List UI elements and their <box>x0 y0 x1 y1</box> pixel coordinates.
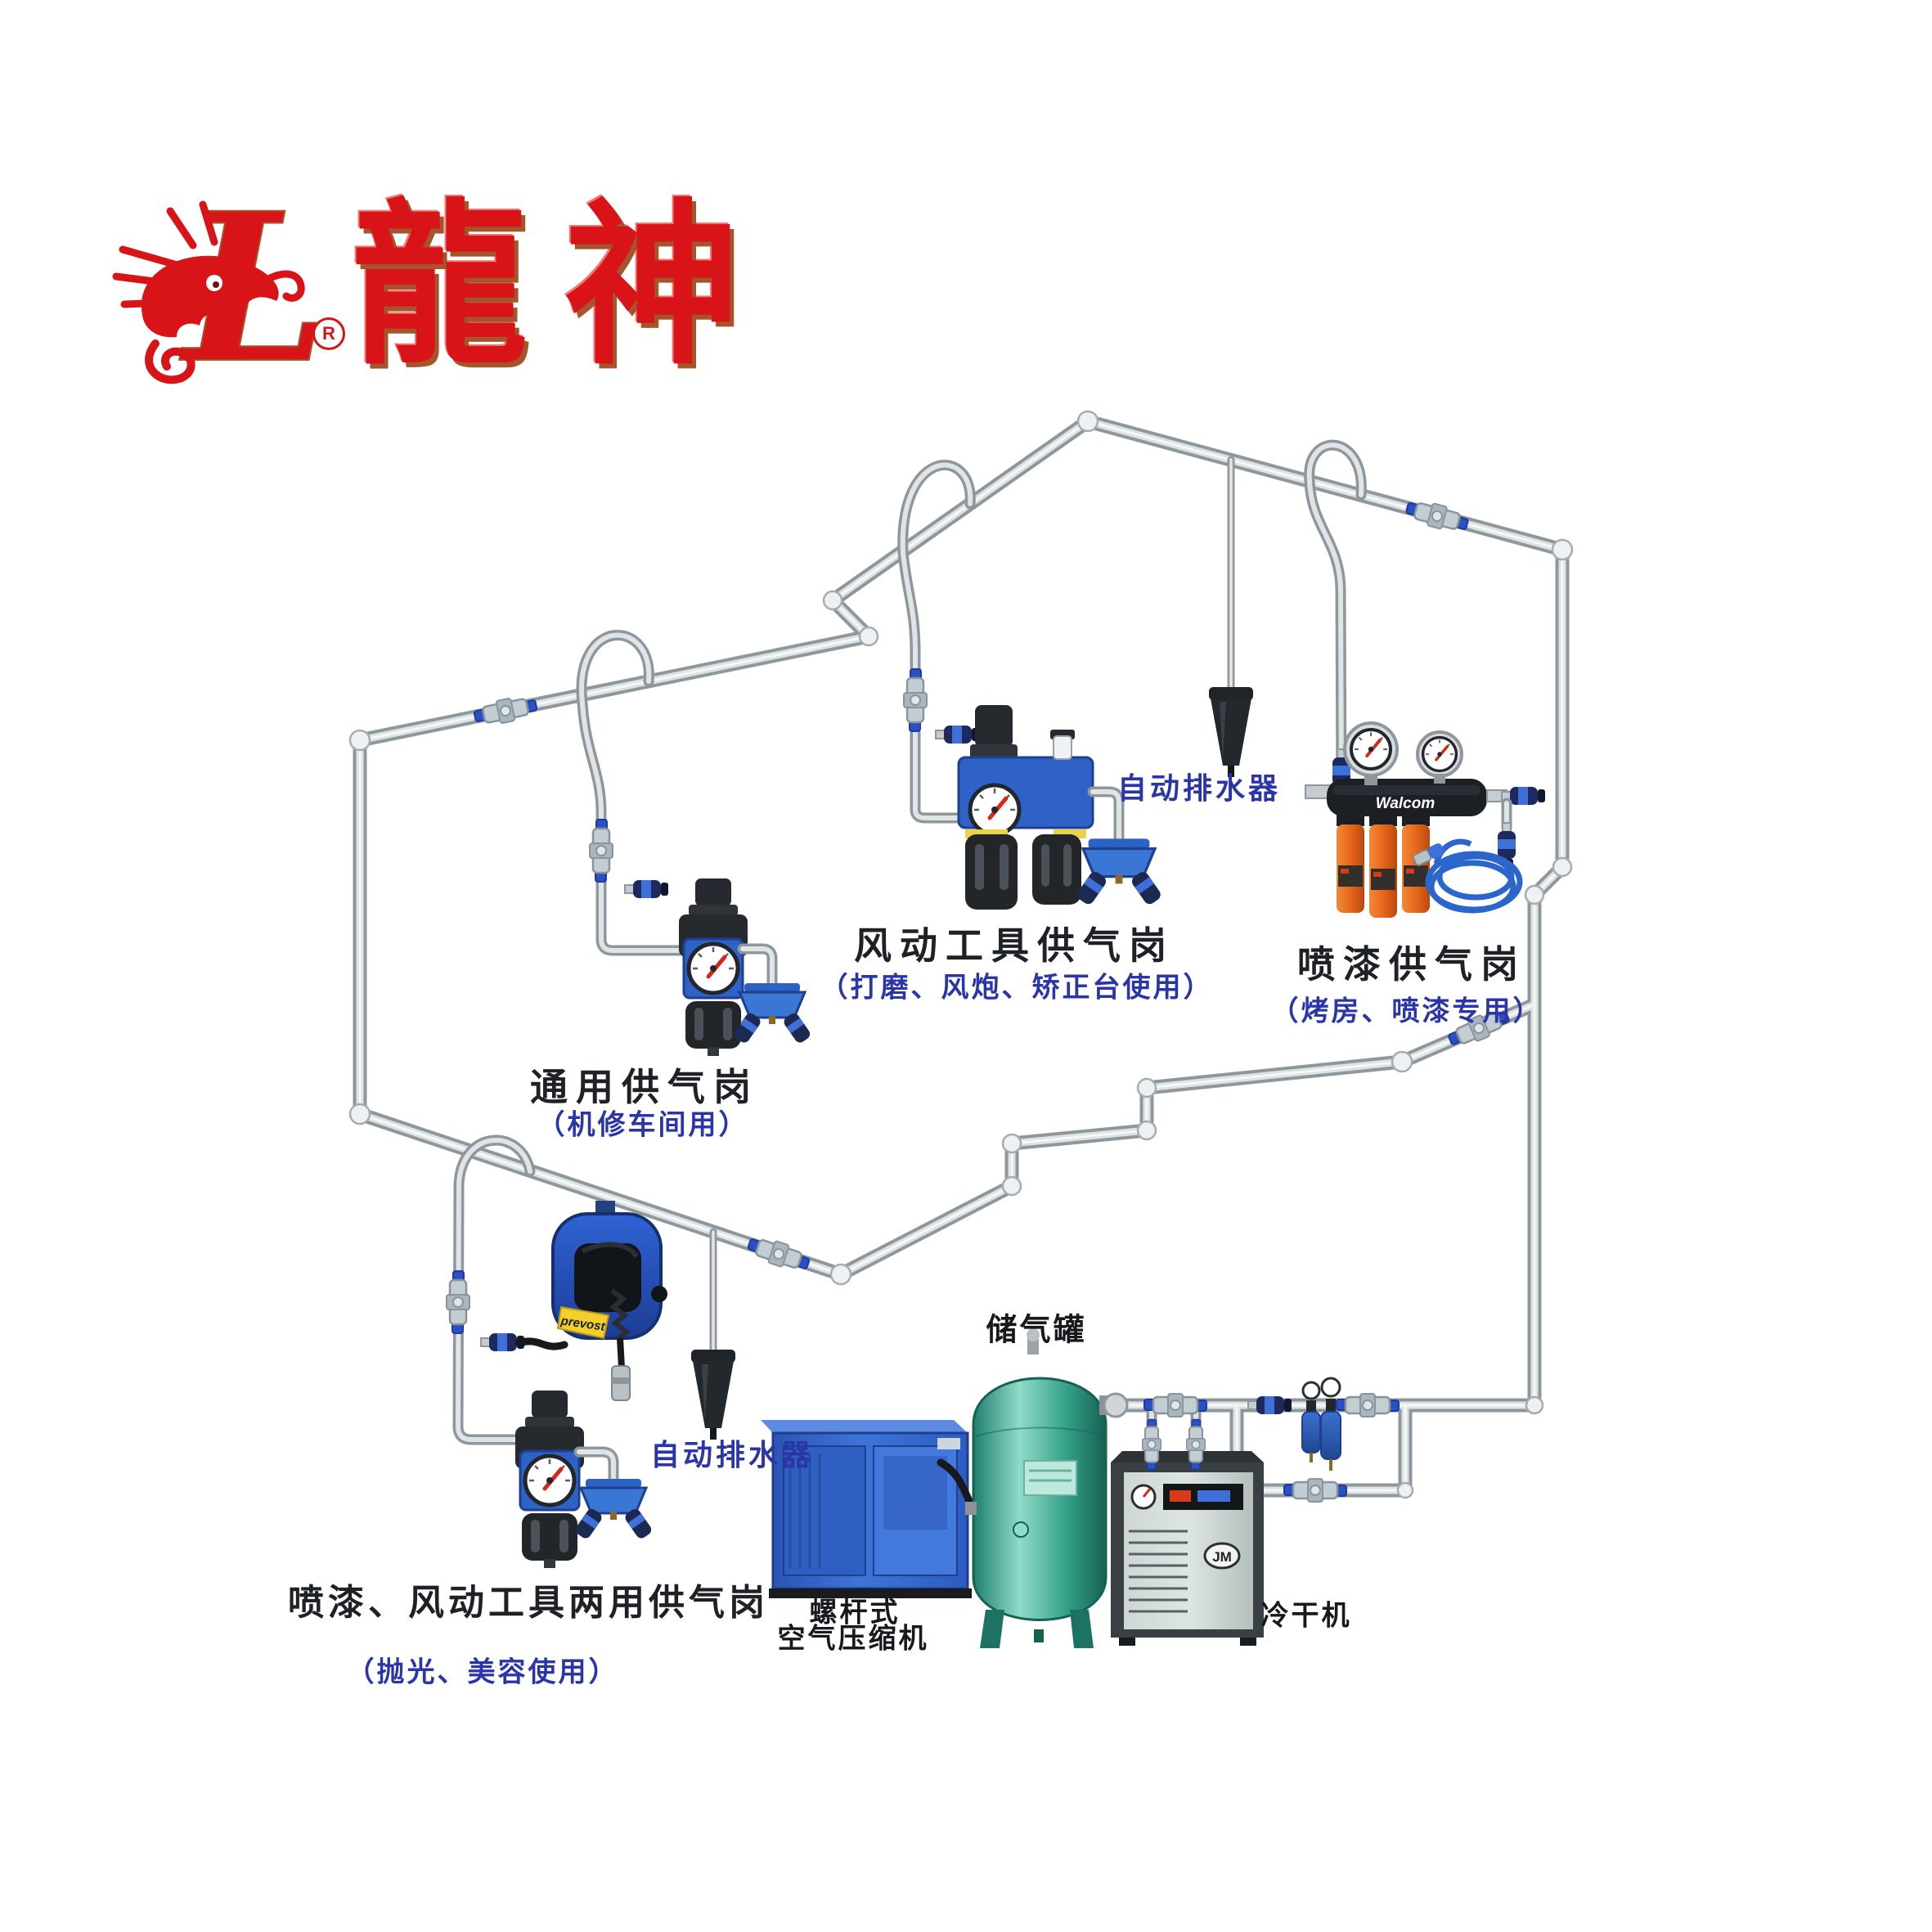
station-label-paint-subtitle: （烤房、喷漆专用） <box>1271 989 1543 1029</box>
station-label-general-subtitle: （机修车间用） <box>537 1103 749 1143</box>
walcom-brand-text: Walcom <box>1376 795 1436 812</box>
dryer-label: 冷干机 <box>1261 1593 1352 1633</box>
brand-name: 龍神 <box>352 143 777 398</box>
compressor-label-line2: 空气压缩机 <box>778 1616 929 1656</box>
inline-filters <box>1302 1378 1341 1471</box>
station-label-pneumatic-subtitle: （打磨、风炮、矫正台使用） <box>820 965 1214 1005</box>
station-label-paint-title: 喷漆供气岗 <box>1297 935 1526 989</box>
air-tank <box>965 1328 1127 1648</box>
orange-filter-cartridges <box>1337 815 1430 918</box>
station-label-dual-subtitle: （抛光、美容使用） <box>347 1650 619 1690</box>
station-label-dual-title: 喷漆、风动工具两用供气岗 <box>288 1573 769 1625</box>
station-general <box>582 635 812 1056</box>
registered-trademark: R <box>312 317 345 350</box>
dragon-logo-mark: L <box>116 168 328 408</box>
air-tank-label: 储气罐 <box>986 1305 1086 1350</box>
drain-label-top: 自动排水器 <box>1117 765 1281 807</box>
auto-drain-top <box>1209 460 1253 777</box>
station-label-pneumatic-title: 风动工具供气岗 <box>854 916 1175 970</box>
refrigerated-dryer: JM <box>1111 1451 1264 1646</box>
drain-label-bottom: 自动排水器 <box>650 1431 814 1474</box>
dryer-logo-text: JM <box>1212 1549 1232 1565</box>
hose-reel: prevost <box>553 1201 667 1400</box>
auto-drain-bottom <box>691 1232 735 1440</box>
poster: Walcom <box>0 0 1932 1932</box>
